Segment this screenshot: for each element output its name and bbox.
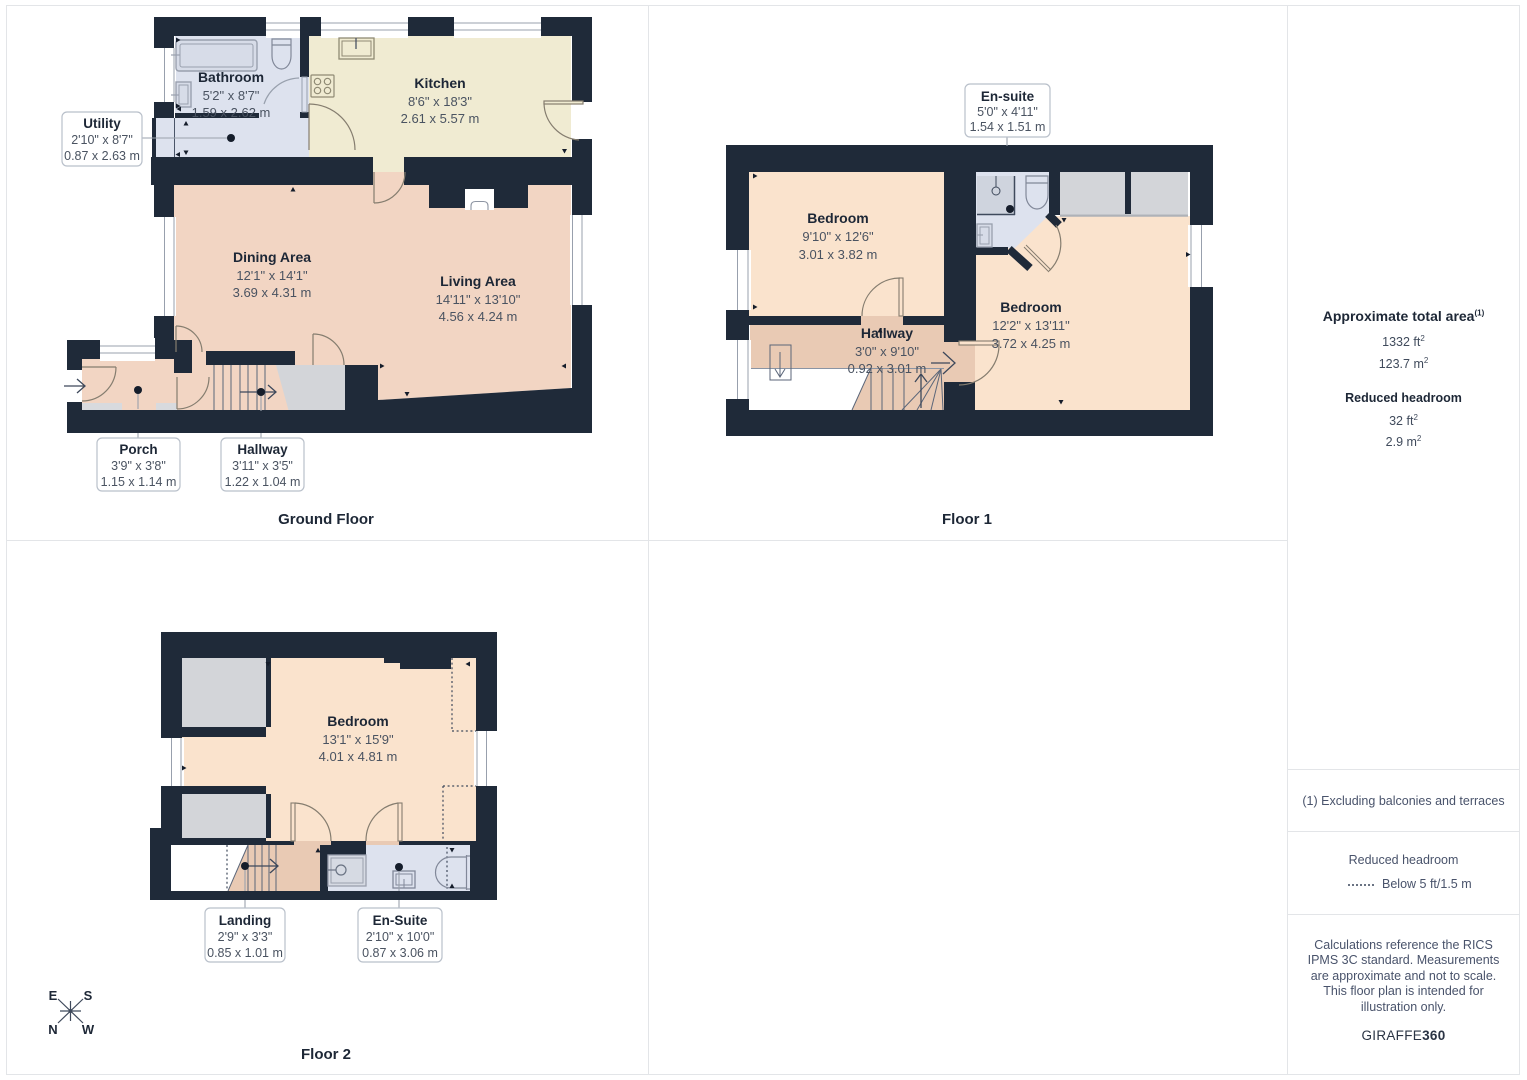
svg-text:0.87 x 3.06 m: 0.87 x 3.06 m — [362, 946, 438, 960]
svg-text:Hallway: Hallway — [861, 325, 913, 341]
svg-text:2'9" x 3'3": 2'9" x 3'3" — [218, 930, 273, 944]
svg-text:Hallway: Hallway — [237, 442, 288, 457]
svg-text:3.69 x 4.31 m: 3.69 x 4.31 m — [233, 285, 312, 300]
svg-text:W: W — [82, 1022, 95, 1037]
svg-text:Porch: Porch — [119, 442, 157, 457]
svg-text:3.72 x 4.25 m: 3.72 x 4.25 m — [992, 336, 1071, 351]
svg-text:1.22 x 1.04 m: 1.22 x 1.04 m — [225, 475, 301, 489]
svg-text:3'0" x 9'10": 3'0" x 9'10" — [855, 344, 919, 359]
svg-text:Bedroom: Bedroom — [1000, 299, 1061, 315]
svg-text:2'10" x 10'0": 2'10" x 10'0" — [366, 930, 435, 944]
svg-text:4.01 x 4.81 m: 4.01 x 4.81 m — [319, 749, 398, 764]
svg-text:0.92 x 3.01 m: 0.92 x 3.01 m — [848, 361, 927, 376]
svg-text:12'2" x 13'11": 12'2" x 13'11" — [992, 318, 1070, 333]
svg-text:2'10" x 8'7": 2'10" x 8'7" — [71, 133, 133, 147]
svg-text:0.85 x 1.01 m: 0.85 x 1.01 m — [207, 946, 283, 960]
svg-text:5'0" x 4'11": 5'0" x 4'11" — [977, 105, 1038, 119]
svg-text:2.61 x 5.57 m: 2.61 x 5.57 m — [401, 111, 480, 126]
svg-text:Kitchen: Kitchen — [414, 75, 465, 91]
svg-text:E: E — [49, 988, 58, 1003]
svg-text:8'6" x 18'3": 8'6" x 18'3" — [408, 94, 472, 109]
svg-text:En-Suite: En-Suite — [373, 913, 428, 928]
svg-text:Living Area: Living Area — [440, 273, 516, 289]
svg-text:Bathroom: Bathroom — [198, 69, 264, 85]
svg-text:12'1" x 14'1": 12'1" x 14'1" — [236, 268, 308, 283]
svg-text:14'11" x 13'10": 14'11" x 13'10" — [436, 292, 521, 307]
svg-text:Bedroom: Bedroom — [807, 210, 868, 226]
svg-text:Landing: Landing — [219, 913, 272, 928]
svg-text:4.56 x 4.24 m: 4.56 x 4.24 m — [439, 309, 518, 324]
svg-text:1.54 x 1.51 m: 1.54 x 1.51 m — [970, 120, 1046, 134]
svg-text:N: N — [48, 1022, 57, 1037]
svg-text:3'11" x 3'5": 3'11" x 3'5" — [232, 459, 293, 473]
svg-text:Bedroom: Bedroom — [327, 713, 388, 729]
svg-text:0.87 x 2.63 m: 0.87 x 2.63 m — [64, 149, 140, 163]
svg-text:3'9" x 3'8": 3'9" x 3'8" — [111, 459, 166, 473]
svg-text:1.15 x 1.14 m: 1.15 x 1.14 m — [101, 475, 177, 489]
svg-text:En-suite: En-suite — [981, 89, 1035, 104]
svg-text:1.59 x 2.62 m: 1.59 x 2.62 m — [192, 105, 271, 120]
svg-text:5'2" x 8'7": 5'2" x 8'7" — [203, 88, 260, 103]
svg-text:S: S — [84, 988, 93, 1003]
svg-text:Utility: Utility — [83, 116, 121, 131]
svg-text:9'10" x 12'6": 9'10" x 12'6" — [802, 229, 874, 244]
svg-text:13'1" x 15'9": 13'1" x 15'9" — [322, 732, 394, 747]
svg-text:3.01 x 3.82 m: 3.01 x 3.82 m — [799, 247, 878, 262]
svg-text:Dining Area: Dining Area — [233, 249, 311, 265]
